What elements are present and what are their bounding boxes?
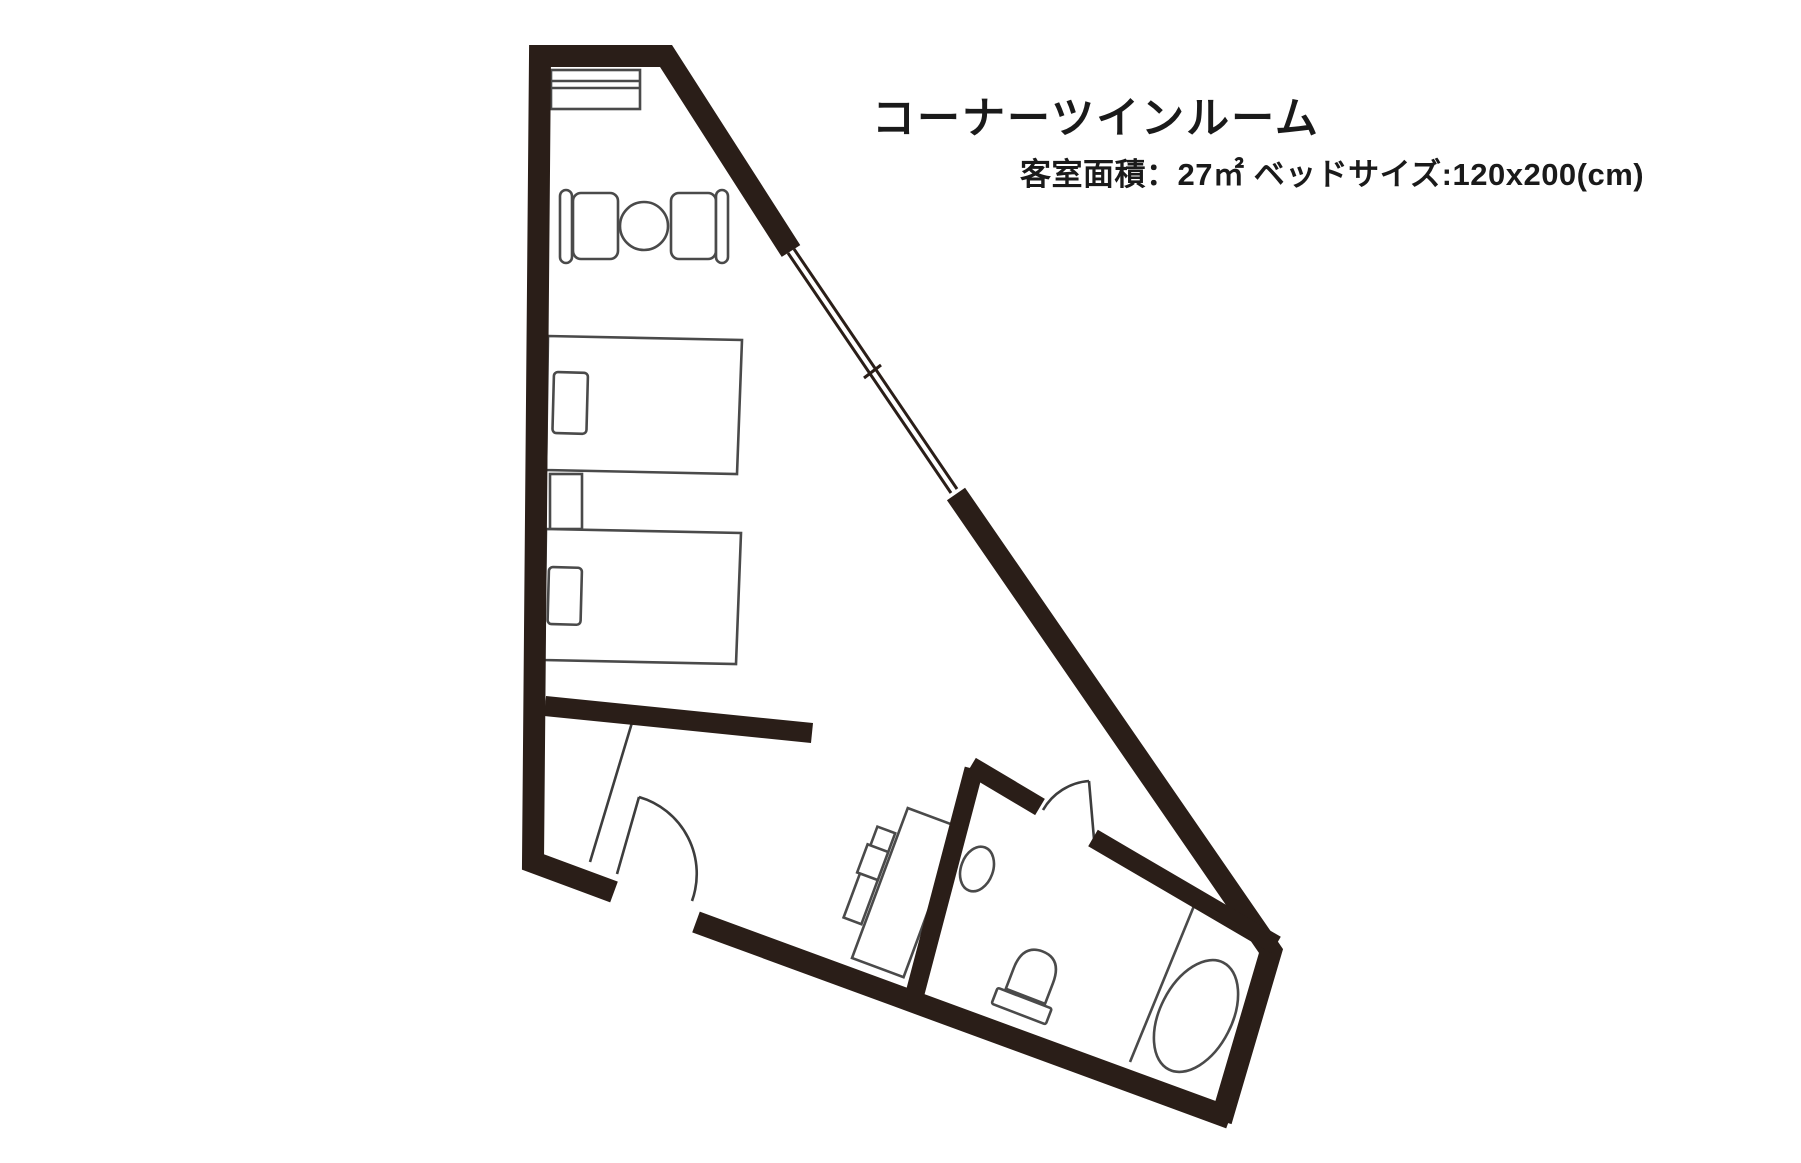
interior-wall [545,706,812,733]
diagonal-window [788,249,957,493]
bathroom-door-leaf [1089,781,1094,839]
chair-left [560,190,618,263]
bathroom-door-swing-arc [1043,781,1089,810]
luggage-shelf [551,70,640,109]
pillow-lower [548,567,582,625]
entrance-door-leaf [617,797,639,874]
nightstand [550,474,582,529]
entrance-door-swing-arc [639,797,697,901]
doors-layer [590,716,1094,901]
page-title: コーナーツインルーム [872,84,1320,146]
cafe-table [620,202,668,250]
twin-bed-lower [544,529,741,664]
floorplan-image: コーナーツインルーム 客室面積：27㎡ ベッドサイズ:120x200(cm) [0,0,1801,1163]
chair-right [671,190,728,263]
twin-bed-upper [546,336,742,474]
bathroom-door [1043,781,1094,839]
entrance-door [617,797,697,901]
toilet [992,941,1070,1024]
room-spec-text: 客室面積：27㎡ ベッドサイズ:120x200(cm) [1020,149,1644,194]
pillow-upper [552,372,588,434]
bathroom-wall-top-left [971,766,1040,807]
outer-wall-bottom [696,922,1230,1118]
furniture-layer [544,70,1255,1086]
